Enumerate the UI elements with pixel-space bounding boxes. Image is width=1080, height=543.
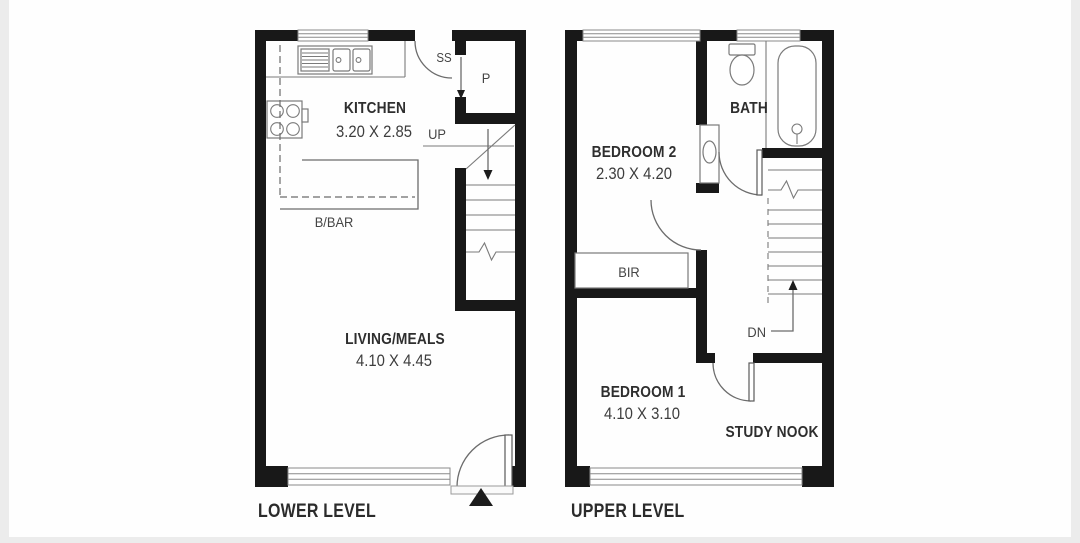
wall-bir-back [577, 288, 707, 298]
wall-bottom-right-corner [512, 466, 526, 487]
floorplan-image: KITCHEN 3.20 X 2.85 B/BAR SS P UP LIVING… [0, 0, 1080, 543]
wall-top-seg2 [700, 30, 737, 41]
bedroom2-label: BEDROOM 2 [592, 143, 677, 161]
breakfast-bar-label: B/BAR [315, 215, 354, 231]
lower-level-plan: KITCHEN 3.20 X 2.85 B/BAR SS P UP LIVING… [255, 30, 526, 521]
bath-window [737, 30, 800, 41]
stair-break-line [768, 181, 822, 198]
wall-bottom-left-corner [565, 466, 590, 487]
kitchen-label: KITCHEN [344, 99, 406, 117]
wall-niche-block [696, 183, 719, 193]
kitchen-window [298, 30, 368, 41]
ss-label: SS [436, 51, 451, 66]
toilet [729, 44, 755, 85]
wall-top-seg1 [255, 30, 298, 41]
bath-door [719, 150, 762, 195]
bedroom2-dims: 2.30 X 4.20 [596, 165, 672, 183]
wall-bath-bottom [762, 148, 834, 158]
wall-hall-partition [696, 250, 707, 353]
stair-direction-arrow-down [484, 170, 493, 180]
dn-label: DN [747, 325, 766, 341]
wall-right [822, 30, 834, 487]
living-label: LIVING/MEALS [345, 330, 445, 348]
wall-left [255, 30, 266, 487]
stove-cooktop [267, 101, 308, 138]
wall-bottom-right-corner [802, 466, 834, 487]
floorplan-svg: KITCHEN 3.20 X 2.85 B/BAR SS P UP LIVING… [0, 0, 1080, 543]
wall-bed2-bath-partition [696, 41, 707, 125]
bedroom2-door-arc [651, 200, 701, 250]
entry-door-arc [457, 435, 509, 487]
bath-label: BATH [730, 99, 768, 117]
bedroom2-window [583, 30, 700, 41]
entry-door-leaf [505, 435, 512, 488]
wall-top-seg2 [368, 30, 415, 41]
wall-top-seg3 [452, 30, 526, 41]
wall-bottom-left-corner [255, 466, 288, 487]
wall-top-seg1 [565, 30, 583, 41]
bedroom1-door-leaf [749, 363, 754, 401]
bedroom1-door [713, 363, 754, 401]
bir-label: BIR [618, 265, 640, 281]
wall-top-seg3 [800, 30, 834, 41]
living-dims: 4.10 X 4.45 [356, 352, 432, 370]
entry-door [451, 435, 513, 506]
upper-level-plan: BEDROOM 2 2.30 X 4.20 BATH BIR DN BEDROO… [565, 30, 834, 521]
stair-direction-arrow-up [789, 280, 798, 290]
bath-door-arc [719, 152, 762, 195]
upper-level-title: UPPER LEVEL [571, 500, 685, 522]
wall-pantry-jamb [455, 41, 466, 55]
stairs-upper [768, 170, 822, 331]
bedroom1-window [590, 468, 802, 485]
bath-door-leaf [757, 150, 762, 195]
wall-right [515, 30, 526, 487]
living-window [288, 468, 450, 485]
wall-stair-bottom [455, 300, 526, 311]
bedroom1-door-arc [713, 363, 751, 401]
stair-break-line [466, 243, 515, 260]
wall-pantry-bottom [455, 113, 526, 124]
kitchen-sink [298, 46, 372, 74]
vanity-basin [700, 125, 719, 183]
breakfast-bar-counter [280, 160, 418, 209]
pantry-label: P [482, 71, 491, 87]
up-label: UP [428, 127, 446, 143]
wall-hall-bottom-left [696, 353, 715, 363]
bedroom1-label: BEDROOM 1 [601, 383, 686, 401]
pantry-sliding-door [457, 57, 465, 99]
bedroom1-dims: 4.10 X 3.10 [604, 405, 680, 423]
kitchen-dims: 3.20 X 2.85 [336, 123, 412, 141]
wall-pantry-jamb2 [455, 97, 466, 113]
wall-stair-left [455, 168, 466, 311]
wall-hall-bottom-right [753, 353, 834, 363]
lower-level-title: LOWER LEVEL [258, 500, 376, 522]
bathtub [778, 46, 816, 146]
study-nook-label: STUDY NOOK [725, 423, 818, 441]
stairs-lower [423, 125, 515, 260]
